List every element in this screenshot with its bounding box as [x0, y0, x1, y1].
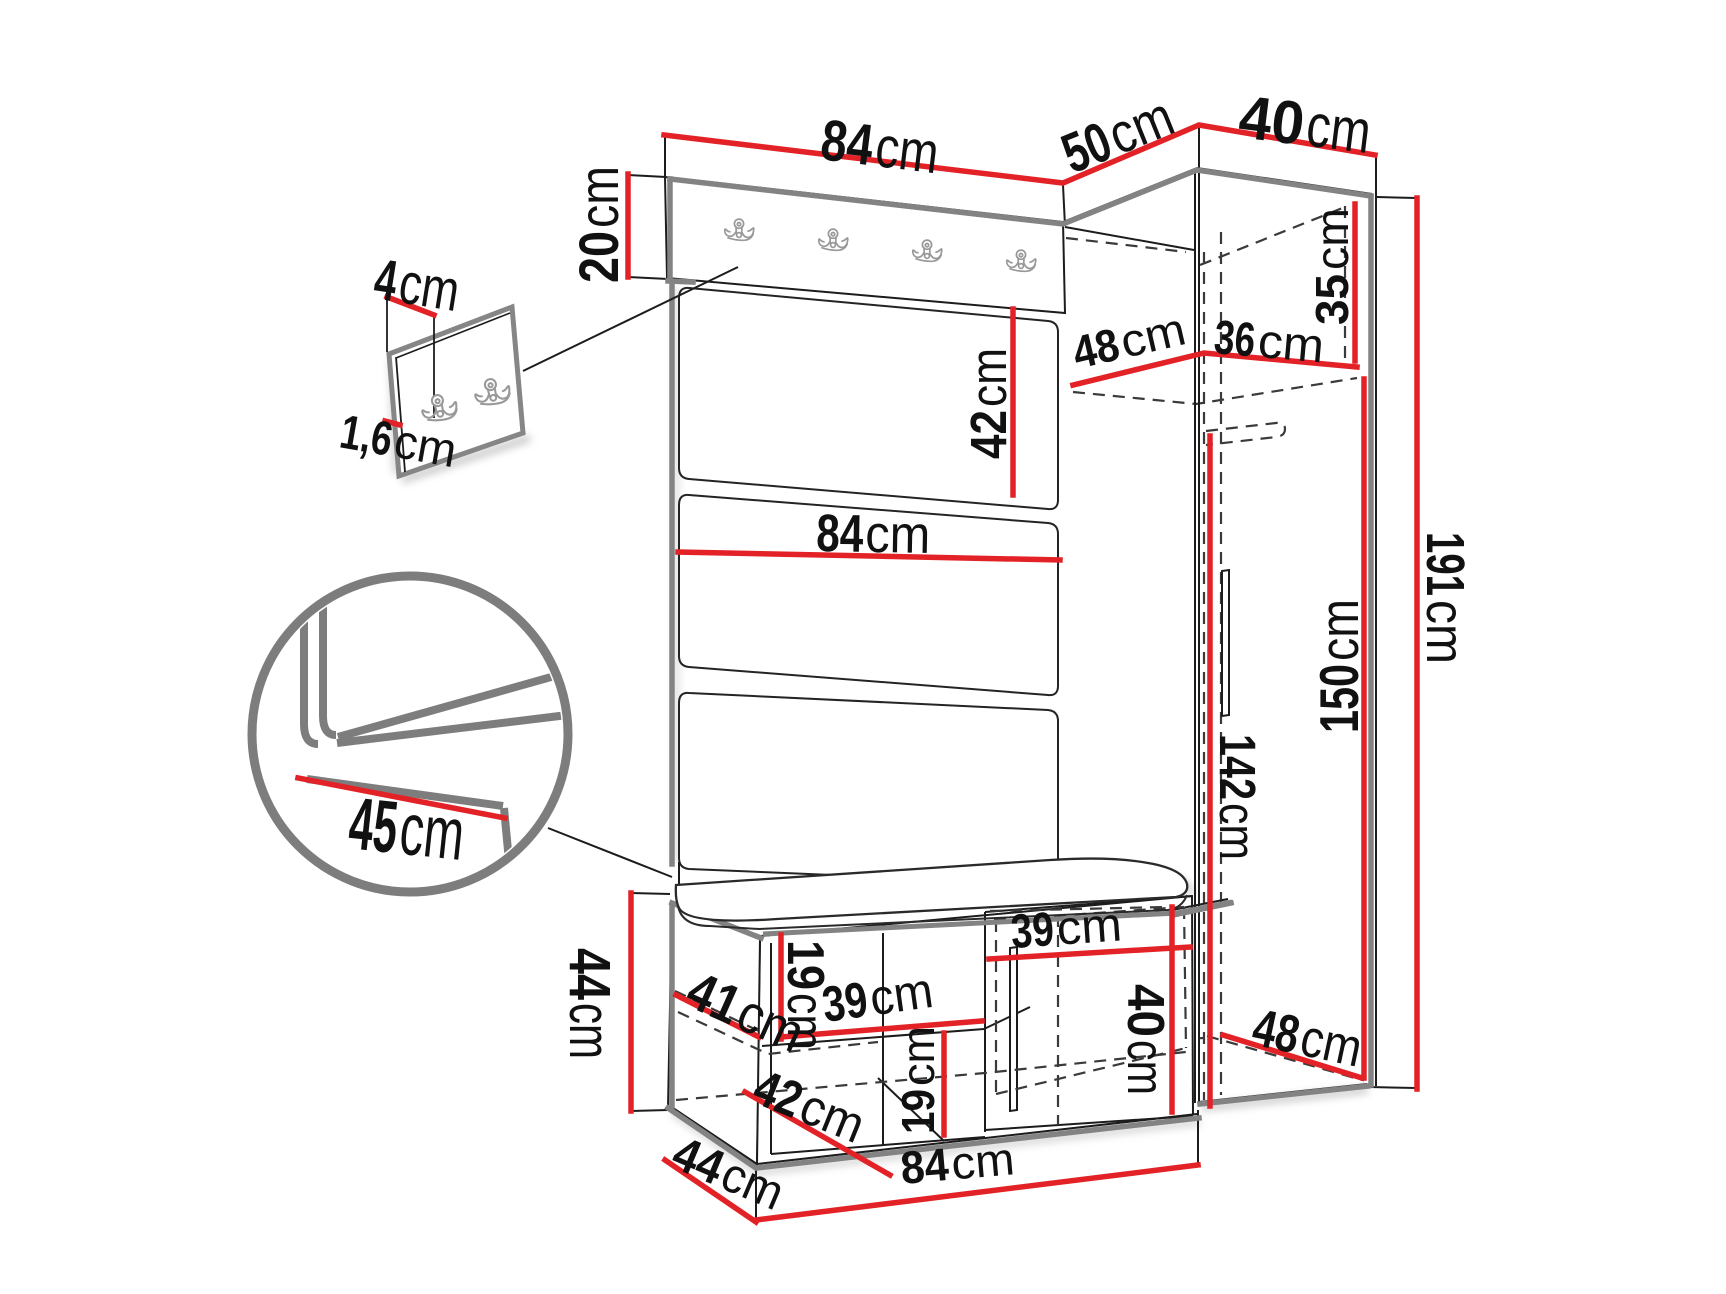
svg-text:cm: cm: [396, 787, 468, 876]
svg-text:142: 142: [1209, 734, 1266, 800]
svg-text:45: 45: [345, 781, 401, 869]
svg-text:cm: cm: [1295, 1008, 1367, 1078]
svg-text:cm: cm: [567, 166, 630, 228]
svg-text:cm: cm: [1415, 600, 1475, 664]
svg-text:cm: cm: [1303, 91, 1375, 166]
svg-text:40: 40: [1235, 82, 1308, 157]
svg-text:cm: cm: [865, 505, 931, 565]
svg-text:cm: cm: [1116, 1040, 1174, 1095]
svg-text:cm: cm: [892, 1026, 944, 1086]
svg-text:39: 39: [1009, 903, 1056, 959]
svg-text:84: 84: [898, 1138, 951, 1194]
svg-text:cm: cm: [1308, 599, 1370, 661]
svg-text:40: 40: [1116, 984, 1174, 1037]
svg-text:cm: cm: [390, 415, 460, 478]
svg-text:cm: cm: [1209, 803, 1266, 860]
svg-text:191: 191: [1415, 532, 1475, 596]
svg-text:36: 36: [1212, 311, 1257, 367]
svg-text:44: 44: [557, 948, 622, 1000]
svg-text:19: 19: [892, 1089, 944, 1134]
svg-text:150: 150: [1308, 664, 1370, 733]
svg-text:35: 35: [1306, 274, 1358, 325]
svg-text:39: 39: [819, 971, 871, 1033]
svg-text:cm: cm: [1055, 898, 1124, 955]
svg-text:cm: cm: [1306, 208, 1358, 270]
svg-text:cm: cm: [1256, 315, 1326, 374]
svg-text:42: 42: [960, 410, 1017, 459]
svg-text:cm: cm: [872, 114, 942, 186]
svg-text:cm: cm: [949, 1132, 1016, 1189]
svg-text:84: 84: [816, 504, 864, 564]
svg-text:20: 20: [567, 231, 630, 283]
svg-text:1,6: 1,6: [336, 406, 396, 467]
svg-text:cm: cm: [557, 1003, 622, 1059]
svg-text:cm: cm: [395, 251, 464, 325]
svg-text:cm: cm: [866, 962, 936, 1026]
svg-text:cm: cm: [960, 348, 1017, 407]
svg-text:84: 84: [817, 107, 877, 178]
